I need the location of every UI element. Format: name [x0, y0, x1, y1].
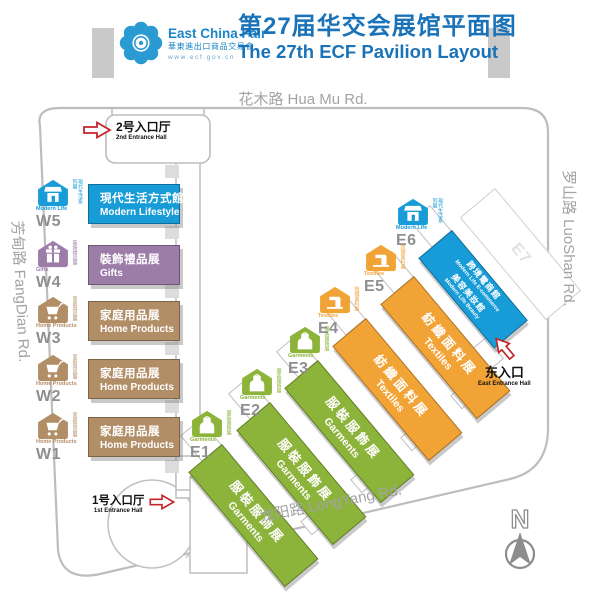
hall-code-w3: W3	[36, 330, 82, 348]
page-title: 第27届华交会展馆平面图 The 27th ECF Pavilion Layou…	[238, 13, 517, 62]
entrance-east: 东入口 East Entrance Hall	[478, 338, 531, 387]
storefront-icon	[396, 198, 430, 226]
pavilion-e2-icon-group: 服裝服飾展 Garments E2	[240, 368, 292, 420]
page-title-en: The 27th ECF Pavilion Layout	[238, 41, 517, 62]
icon-side-label: 現代生活系列展	[71, 179, 82, 205]
entrance-2-label-en: 2nd Entrance Hall	[116, 135, 171, 141]
hall-code-e3: E3	[288, 360, 340, 378]
ecf-flower-logo-icon	[118, 20, 164, 66]
icon-side-label: 家庭用品展	[71, 412, 77, 437]
road-label-luoshan: 罗山路 LuoShan Rd.	[559, 170, 580, 307]
pavilion-title-cn: 家庭用品展	[100, 365, 179, 381]
page-title-cn: 第27届华交会展馆平面图	[238, 13, 517, 41]
pavilion-title-en: Home Products	[100, 440, 179, 451]
pavilion-w3-box: 家庭用品展 Home Products	[88, 301, 180, 341]
pavilion-w5: 現代生活系列展 Modern Life W5 現代生活方式館 Modern Li…	[36, 184, 180, 231]
ghost-hall-label: E7	[507, 240, 535, 268]
hall-code-e2: E2	[240, 402, 292, 420]
pavilion-title-cn: 家庭用品展	[100, 307, 179, 323]
icon-caption: Home Products	[36, 381, 82, 387]
apron-icon	[288, 326, 322, 354]
icon-side-label: 服裝服飾展	[275, 368, 281, 393]
apron-icon	[190, 410, 224, 438]
pavilion-w1-box: 家庭用品展 Home Products	[88, 417, 180, 457]
entrance-1-arrow-icon	[148, 493, 176, 511]
icon-caption: Home Products	[36, 439, 82, 445]
icon-side-label: 紡織面料展	[353, 286, 359, 311]
entrance-1-label-cn: 1号入口厅	[92, 492, 144, 508]
pavilion-layout-page: East China Fair 華東進出口商品交易會 www.ecf.gov.c…	[0, 0, 600, 615]
pavilion-title-en: Gifts	[100, 268, 179, 279]
hall-code-w4: W4	[36, 274, 82, 292]
icon-side-label: 現代生活系列展	[431, 198, 442, 224]
icon-side-label: 裝飾禮品展	[71, 240, 77, 265]
hall-code-e6: E6	[396, 232, 448, 250]
icon-side-label: 家庭用品展	[71, 296, 77, 321]
pavilion-w2: 家庭用品展 Home Products W2 家庭用品展 Home Produc…	[36, 359, 180, 406]
pavilion-title-cn: 家庭用品展	[100, 423, 179, 439]
north-compass-icon: N	[506, 504, 534, 568]
pavilion-w5-box: 現代生活方式館 Modern Lifestyle	[88, 184, 180, 224]
hall-code-e1: E1	[190, 444, 242, 462]
gift-icon	[36, 240, 70, 268]
pavilion-w4-box: 裝飾禮品展 Gifts	[88, 245, 180, 285]
pavilion-e5-icon-group: 紡織面料展 Textiles E5	[364, 244, 416, 296]
hall-code-e5: E5	[364, 278, 416, 296]
east-entrance-label-en: East Entrance Hall	[478, 381, 531, 387]
pavilion-w4: 裝飾禮品展 Gifts W4 裝飾禮品展 Gifts	[36, 245, 180, 292]
entrance-2-label-cn: 2号入口厅	[116, 118, 171, 135]
road-label-huamu: 花木路 Hua Mu Rd.	[208, 88, 398, 109]
pavilion-w2-box: 家庭用品展 Home Products	[88, 359, 180, 399]
entrance-2: 2号入口厅 2nd Entrance Hall	[82, 118, 171, 141]
connector-stub	[165, 165, 179, 178]
apron-icon	[240, 368, 274, 396]
cart-icon	[36, 354, 70, 382]
pavilion-title-en: Modern Lifestyle	[100, 207, 179, 218]
sewing-machine-icon	[364, 244, 398, 272]
pavilion-title-cn: 裝飾禮品展	[100, 251, 179, 267]
cart-icon	[36, 296, 70, 324]
pavilion-e6-icon-group: 現代生活系列展 Modern Life E6	[396, 198, 448, 250]
header: East China Fair 華東進出口商品交易會 www.ecf.gov.c…	[0, 0, 600, 88]
pavilion-e4-icon-group: 紡織面料展 Textiles E4	[318, 286, 370, 338]
pavilion-title-en: Home Products	[100, 382, 179, 393]
pavilion-w1: 家庭用品展 Home Products W1 家庭用品展 Home Produc…	[36, 417, 180, 464]
entrance-1-label-en: 1st Entrance Hall	[92, 508, 144, 514]
pavilion-title-cn: 現代生活方式館	[100, 190, 179, 206]
icon-caption: Modern Life	[396, 225, 448, 231]
hall-code-w2: W2	[36, 388, 82, 406]
site-map: N 花木路 Hua Mu Rd. 罗山路 LuoShan Rd. 芳甸路 Fan…	[0, 88, 600, 615]
entrance-2-arrow-icon	[82, 120, 112, 140]
compass-label: N	[511, 504, 530, 534]
header-decor-bar-left	[92, 28, 114, 78]
icon-caption: Modern Life	[36, 206, 82, 212]
hall-code-e4: E4	[318, 320, 370, 338]
sewing-machine-icon	[318, 286, 352, 314]
hall-code-w5: W5	[36, 213, 82, 231]
pavilion-w3: 家庭用品展 Home Products W3 家庭用品展 Home Produc…	[36, 301, 180, 348]
cart-icon	[36, 412, 70, 440]
pavilion-title-en: Home Products	[100, 324, 179, 335]
icon-side-label: 服裝服飾展	[225, 410, 231, 435]
icon-caption: Home Products	[36, 323, 82, 329]
pavilion-e1-icon-group: 服裝服飾展 Garments E1	[190, 410, 242, 462]
storefront-icon	[36, 179, 70, 207]
hall-code-w1: W1	[36, 446, 82, 464]
icon-side-label: 家庭用品展	[71, 354, 77, 379]
entrance-1: 1号入口厅 1st Entrance Hall	[92, 492, 176, 514]
